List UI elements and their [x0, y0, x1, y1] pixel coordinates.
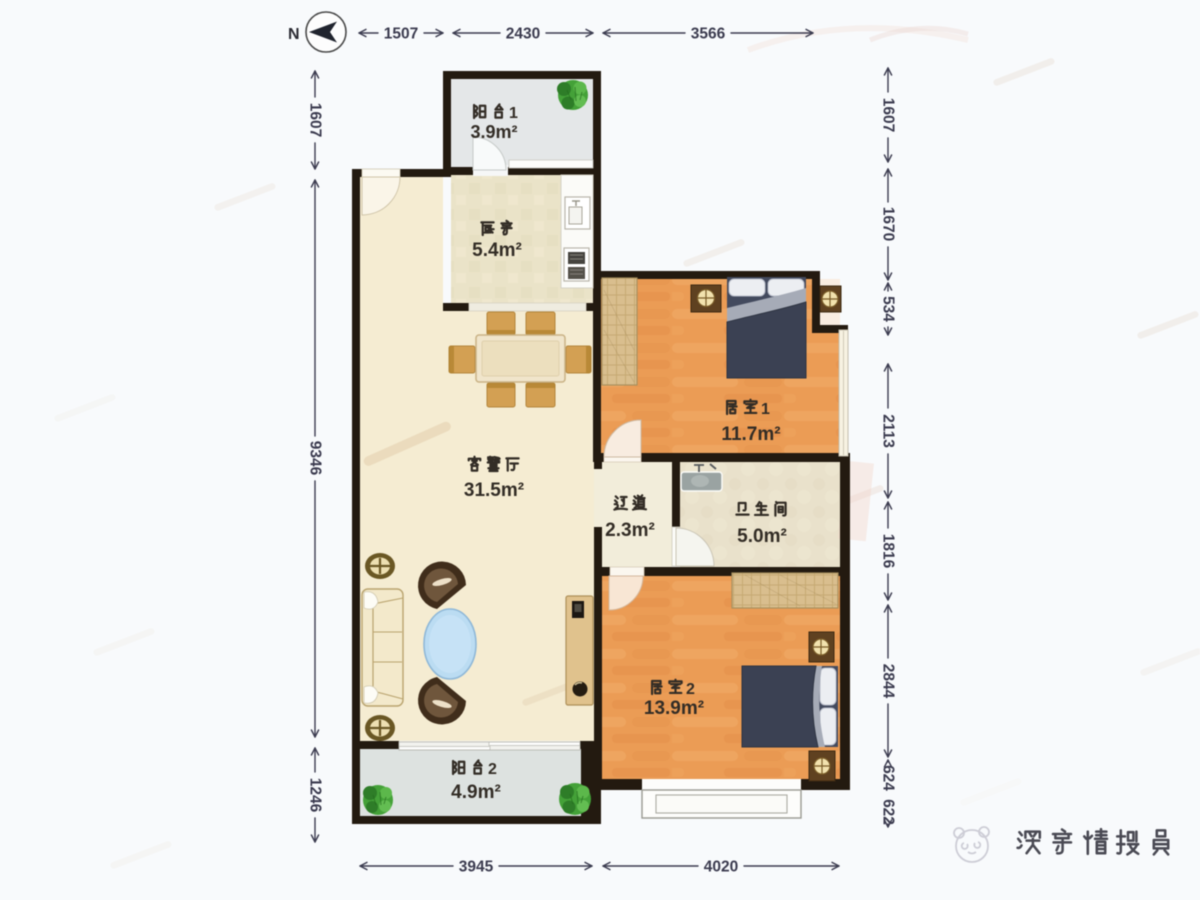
- svg-text:2113: 2113: [880, 414, 897, 448]
- svg-text:1670: 1670: [880, 207, 897, 241]
- svg-text:1246: 1246: [307, 778, 324, 813]
- svg-text:5.4m²: 5.4m²: [472, 240, 522, 261]
- svg-text:13.9m²: 13.9m²: [644, 698, 704, 719]
- svg-text:2.3m²: 2.3m²: [605, 520, 655, 541]
- svg-text:31.5m²: 31.5m²: [464, 480, 524, 501]
- svg-text:4.9m²: 4.9m²: [451, 782, 501, 803]
- svg-text:2: 2: [686, 681, 695, 698]
- svg-text:622: 622: [880, 799, 897, 825]
- svg-text:2: 2: [488, 761, 497, 778]
- svg-text:3.9m²: 3.9m²: [470, 122, 517, 142]
- svg-text:4020: 4020: [704, 859, 738, 876]
- svg-text:9346: 9346: [307, 441, 324, 476]
- svg-text:624: 624: [880, 765, 897, 791]
- svg-text:1: 1: [509, 105, 518, 122]
- svg-text:1816: 1816: [880, 534, 897, 569]
- svg-text:3566: 3566: [691, 26, 726, 43]
- svg-text:1607: 1607: [880, 98, 897, 132]
- svg-text:11.7m²: 11.7m²: [721, 424, 780, 445]
- svg-text:1: 1: [761, 401, 770, 418]
- svg-text:2844: 2844: [880, 664, 897, 699]
- svg-text:N: N: [288, 26, 300, 43]
- svg-text:1507: 1507: [384, 26, 418, 43]
- svg-text:5.0m²: 5.0m²: [737, 526, 787, 547]
- svg-text:1607: 1607: [307, 103, 324, 137]
- svg-text:2430: 2430: [506, 26, 540, 43]
- svg-text:3945: 3945: [459, 859, 494, 876]
- svg-text:534: 534: [880, 296, 897, 322]
